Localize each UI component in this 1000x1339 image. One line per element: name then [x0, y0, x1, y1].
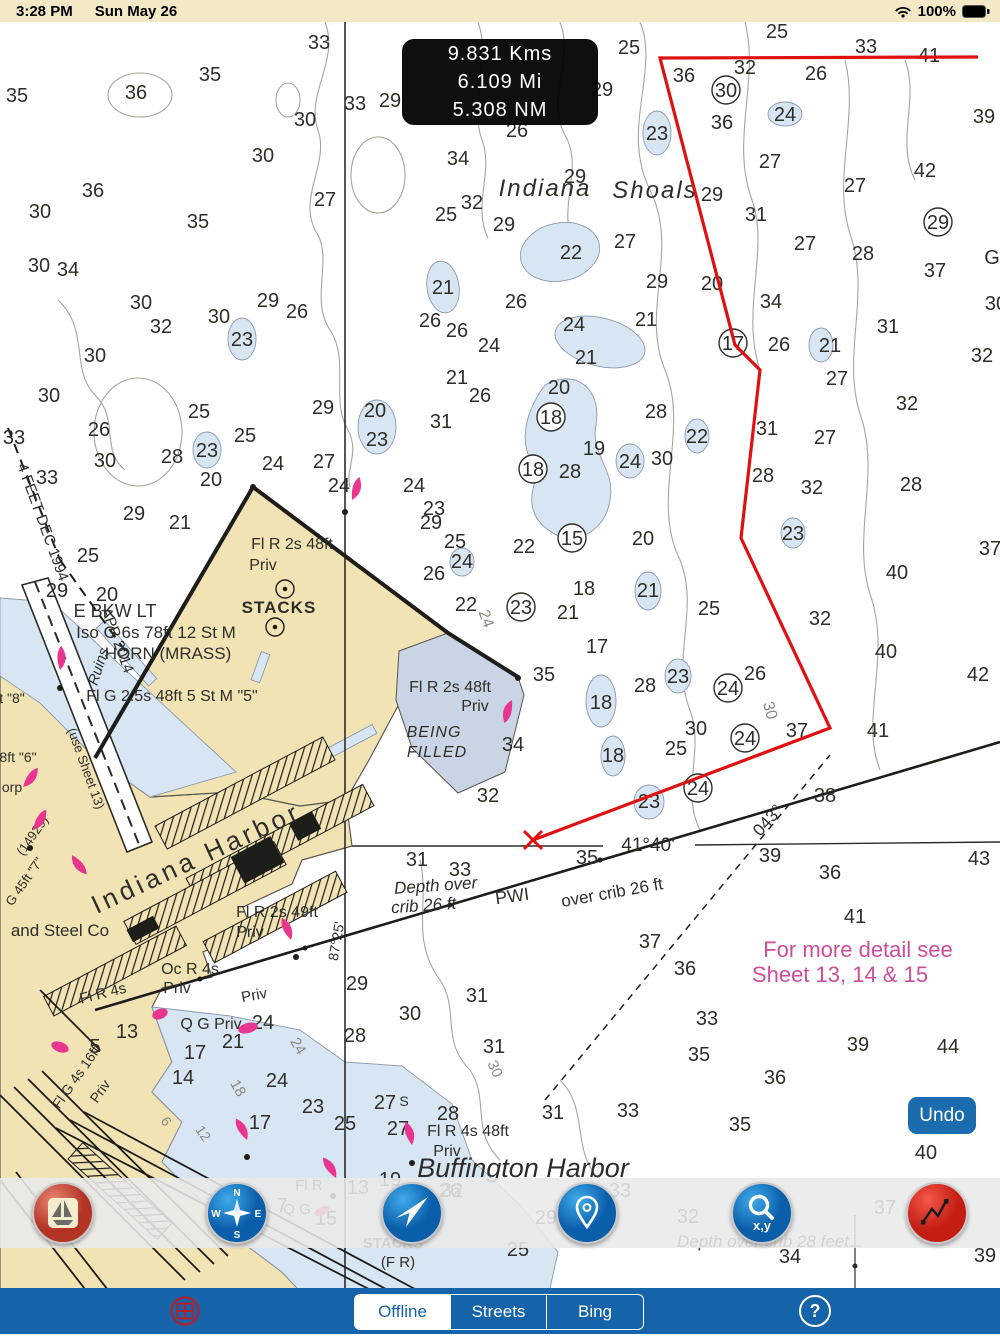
depth-sounding: 29 — [493, 214, 515, 236]
depth-sounding: 35 — [729, 1114, 751, 1136]
compass-n-label: N — [233, 1188, 240, 1199]
depth-sounding: 29 — [123, 503, 145, 525]
depth-sounding: 28 — [852, 243, 874, 265]
depth-sounding: 32 — [477, 785, 499, 807]
depth-sounding: 24 — [774, 104, 796, 126]
chart-label: Sheet 13, 14 & 15 — [752, 962, 928, 987]
depth-sounding: 35 — [187, 211, 209, 233]
chart-label: G — [984, 247, 1000, 269]
depth-sounding: 25 — [766, 21, 788, 43]
depth-sounding: 20 — [632, 528, 654, 550]
depth-sounding: 26 — [805, 63, 827, 85]
battery-icon — [962, 5, 990, 18]
depth-sounding: 20 — [548, 377, 570, 399]
depth-sounding: 29 — [257, 290, 279, 312]
chart-label: 41°40' — [621, 835, 675, 856]
chart-label: Fl R 2s 48ft — [251, 536, 333, 553]
depth-sounding: 30 — [651, 448, 673, 470]
tab-bing[interactable]: Bing — [547, 1295, 643, 1329]
depth-sounding: 30 — [28, 255, 50, 277]
depth-sounding: 17 — [184, 1042, 206, 1064]
depth-sounding: 23 — [510, 597, 532, 619]
depth-sounding: 27 — [374, 1092, 396, 1114]
map-source-segmented-control: Offline Streets Bing — [354, 1294, 644, 1330]
light-position-dot — [409, 1160, 415, 1166]
chart-label: t "8" — [0, 690, 25, 706]
depth-sounding: 15 — [561, 528, 583, 550]
depth-sounding: 33 — [3, 427, 25, 449]
depth-sounding: 22 — [560, 242, 582, 264]
light-position-dot — [57, 685, 63, 691]
depth-sounding: 43 — [968, 848, 990, 870]
wifi-icon — [894, 4, 912, 18]
depth-sounding: 24 — [717, 678, 739, 700]
depth-sounding: 35 — [576, 847, 598, 869]
status-bar: 3:28 PM Sun May 26 100% — [0, 0, 1000, 22]
depth-sounding: 35 — [6, 85, 28, 107]
depth-sounding: 25 — [698, 598, 720, 620]
depth-sounding: 30 — [29, 201, 51, 223]
depth-sounding: 24 — [478, 335, 500, 357]
depth-sounding: 33 — [617, 1100, 639, 1122]
depth-sounding: 31 — [406, 849, 428, 871]
depth-sounding: 30 — [252, 145, 274, 167]
depth-sounding: 28 — [161, 446, 183, 468]
depth-sounding: 27 — [313, 451, 335, 473]
depth-sounding: 29 — [346, 973, 368, 995]
chart-label: FILLED — [407, 744, 467, 761]
bottom-nav-bar: Offline Streets Bing ? — [0, 1288, 1000, 1334]
depth-sounding: 23 — [302, 1096, 324, 1118]
light-position-dot — [27, 845, 33, 851]
chart-label: Priv — [461, 698, 489, 715]
chart-label: Iso G 6s 78ft 12 St M — [76, 623, 236, 642]
depth-sounding: 41 — [844, 906, 866, 928]
depth-sounding: 35 — [199, 64, 221, 86]
compass-w-label: W — [211, 1209, 221, 1220]
light-position-dot — [342, 509, 348, 515]
depth-sounding: 34 — [57, 259, 79, 281]
chart-boat-button[interactable] — [31, 1181, 95, 1245]
gps-arrow-button[interactable] — [380, 1181, 444, 1245]
depth-sounding: 29 — [379, 90, 401, 112]
depth-sounding: 14 — [172, 1067, 194, 1089]
depth-sounding: 26 — [469, 385, 491, 407]
depth-sounding: 31 — [756, 418, 778, 440]
depth-sounding: 30 — [685, 718, 707, 740]
depth-sounding: 30 — [208, 306, 230, 328]
depth-sounding: 18 — [590, 692, 612, 714]
depth-sounding: 25 — [234, 425, 256, 447]
depth-sounding: 32 — [734, 57, 756, 79]
depth-sounding: 21 — [819, 335, 841, 357]
map-toolbar: N S W E x,y — [0, 1178, 1000, 1248]
depth-sounding: 29 — [927, 212, 949, 234]
depth-sounding: 31 — [483, 1036, 505, 1058]
depth-sounding: 37 — [979, 538, 1000, 560]
depth-sounding: 24 — [619, 451, 641, 473]
depth-sounding: 38 — [814, 785, 836, 807]
depth-sounding: 31 — [466, 985, 488, 1007]
light-position-dot — [515, 675, 521, 681]
chart-label: For more detail see — [763, 937, 953, 962]
depth-sounding: 27 — [314, 189, 336, 211]
compass-e-label: E — [255, 1209, 262, 1220]
depth-sounding: 17 — [249, 1112, 271, 1134]
depth-sounding: 26 — [505, 291, 527, 313]
depth-sounding: 26 — [446, 320, 468, 342]
depth-sounding: 40 — [915, 1142, 937, 1164]
depth-sounding: 24 — [328, 475, 350, 497]
depth-sounding: 21 — [635, 309, 657, 331]
depth-sounding: 32 — [896, 393, 918, 415]
distance-km: 9.831 Kms — [448, 40, 553, 68]
depth-sounding: 25 — [444, 531, 466, 553]
depth-sounding: 44 — [937, 1036, 959, 1058]
help-button[interactable]: ? — [799, 1295, 831, 1327]
depth-sounding: 23 — [782, 523, 804, 545]
depth-sounding: 30 — [399, 1003, 421, 1025]
chart-label: Indiana — [499, 175, 592, 202]
xy-label: x,y — [753, 1218, 772, 1233]
status-date: Sun May 26 — [95, 3, 178, 20]
depth-sounding: 28 — [900, 474, 922, 496]
chart-label: S — [399, 1093, 408, 1109]
depth-sounding: 25 — [77, 545, 99, 567]
depth-sounding: 24 — [734, 728, 756, 750]
depth-sounding: 31 — [542, 1102, 564, 1124]
depth-sounding: 42 — [967, 664, 989, 686]
depth-sounding: 29 — [701, 184, 723, 206]
light-position-dot — [244, 1154, 250, 1160]
light-position-dot — [250, 484, 256, 490]
compass-button[interactable]: N S W E — [205, 1181, 269, 1245]
chart-label: Fl R 4s 48ft — [427, 1123, 509, 1140]
depth-sounding: 29 — [420, 512, 442, 534]
chart-label: Shoals — [612, 177, 697, 204]
depth-sounding: 21 — [575, 347, 597, 369]
depth-sounding: 22 — [513, 536, 535, 558]
depth-sounding: 25 — [188, 401, 210, 423]
depth-sounding: 28 — [559, 461, 581, 483]
tab-streets[interactable]: Streets — [451, 1295, 547, 1329]
depth-sounding: 28 — [344, 1025, 366, 1047]
depth-sounding: 32 — [801, 477, 823, 499]
chart-label: Q G Priv — [180, 1016, 241, 1033]
depth-sounding: 33 — [308, 32, 330, 54]
location-pin-button[interactable] — [555, 1181, 619, 1245]
depth-sounding: 20 — [364, 400, 386, 422]
depth-sounding: 27 — [826, 368, 848, 390]
distance-mi: 6.109 Mi — [458, 68, 543, 96]
depth-sounding: 26 — [768, 334, 790, 356]
chart-label: Priv — [163, 980, 191, 997]
depth-sounding: 20 — [200, 469, 222, 491]
depth-sounding: 30 — [94, 450, 116, 472]
compass-s-label: S — [234, 1230, 241, 1241]
depth-sounding: 30 — [985, 293, 1000, 315]
depth-sounding: 34 — [447, 148, 469, 170]
depth-sounding: 22 — [686, 426, 708, 448]
depth-sounding: 32 — [971, 345, 993, 367]
chart-label: Fl G 2.5s 48ft 5 St M "5" — [86, 688, 257, 705]
depth-sounding: 24 — [266, 1070, 288, 1092]
route-button[interactable] — [905, 1181, 969, 1245]
depth-sounding: 30 — [38, 385, 60, 407]
depth-sounding: 23 — [667, 666, 689, 688]
depth-sounding: 35 — [688, 1044, 710, 1066]
depth-sounding: 21 — [637, 580, 659, 602]
depth-sounding: 25 — [665, 738, 687, 760]
coordinates-button[interactable]: x,y — [730, 1181, 794, 1245]
depth-sounding: 27 — [759, 151, 781, 173]
chart-label: Fl R 2s 49ft — [236, 904, 318, 921]
chart-label: (F R) — [381, 1254, 415, 1271]
depth-sounding: 24 — [262, 453, 284, 475]
depth-sounding: 26 — [419, 310, 441, 332]
depth-sounding: 21 — [169, 512, 191, 534]
chart-label: STACKS — [242, 598, 317, 617]
depth-sounding: 31 — [430, 411, 452, 433]
depth-sounding: 28 — [752, 465, 774, 487]
depth-sounding: 21 — [446, 367, 468, 389]
depth-sounding: 32 — [809, 608, 831, 630]
depth-sounding: 30 — [84, 345, 106, 367]
depth-sounding: 26 — [88, 419, 110, 441]
distance-info-box: 9.831 Kms 6.109 Mi 5.308 NM — [402, 39, 598, 125]
chart-label: Priv — [433, 1143, 461, 1160]
depth-sounding: 39 — [759, 845, 781, 867]
depth-sounding: 40 — [886, 562, 908, 584]
depth-sounding: 25 — [618, 37, 640, 59]
depth-sounding: 13 — [116, 1021, 138, 1043]
depth-sounding: 36 — [125, 82, 147, 104]
depth-sounding: 29 — [646, 271, 668, 293]
depth-sounding: 36 — [819, 862, 841, 884]
depth-sounding: 36 — [674, 958, 696, 980]
depth-sounding: 27 — [794, 233, 816, 255]
depth-sounding: 31 — [877, 316, 899, 338]
depth-sounding: 27 — [814, 427, 836, 449]
depth-sounding: 17 — [586, 636, 608, 658]
chart-label: Oc R 4s — [161, 961, 219, 978]
depth-sounding: 27 — [844, 175, 866, 197]
depth-sounding: 23 — [196, 440, 218, 462]
depth-sounding: 19 — [583, 438, 605, 460]
depth-sounding: 40 — [875, 641, 897, 663]
depth-sounding: 28 — [634, 675, 656, 697]
depth-sounding: 18 — [540, 407, 562, 429]
depth-sounding: 22 — [455, 594, 477, 616]
chart-label: Priv — [249, 557, 277, 574]
chart-label: Fl R 2s 48ft — [409, 679, 491, 696]
sailboat-icon — [48, 1198, 78, 1228]
depth-sounding: 18 — [573, 578, 595, 600]
depth-sounding: 36 — [82, 180, 104, 202]
depth-sounding: 18 — [602, 745, 624, 767]
depth-sounding: 30 — [294, 109, 316, 131]
depth-sounding: 33 — [855, 36, 877, 58]
depth-sounding: 28 — [645, 401, 667, 423]
depth-sounding: 39 — [974, 1245, 996, 1267]
depth-sounding: 31 — [745, 204, 767, 226]
clock-time: 3:28 PM — [16, 3, 73, 20]
depth-sounding: 21 — [222, 1031, 244, 1053]
depth-sounding: 32 — [461, 192, 483, 214]
depth-sounding: 23 — [366, 429, 388, 451]
depth-sounding: 41 — [867, 720, 889, 742]
depth-sounding: 27 — [614, 231, 636, 253]
chart-label: Priv — [236, 924, 264, 941]
depth-sounding: 24 — [563, 314, 585, 336]
depth-sounding: 34 — [760, 291, 782, 313]
depth-sounding: 26 — [286, 301, 308, 323]
chart-label: orp — [2, 779, 22, 795]
depth-sounding: 36 — [711, 112, 733, 134]
depth-sounding: 36 — [673, 65, 695, 87]
depth-sounding: 32 — [150, 316, 172, 338]
depth-sounding: 35 — [533, 664, 555, 686]
depth-sounding: 26 — [423, 563, 445, 585]
nautical-chart-map[interactable]: 3325253341363226303536353329292436233930… — [0, 0, 1000, 1334]
depth-sounding: 24 — [403, 475, 425, 497]
app-logo-icon — [168, 1294, 202, 1328]
light-position-dot — [293, 954, 299, 960]
chart-label: 8ft "6" — [0, 749, 37, 765]
tab-offline[interactable]: Offline — [355, 1295, 451, 1329]
depth-sounding: 36 — [764, 1067, 786, 1089]
depth-sounding: 25 — [334, 1113, 356, 1135]
battery-percent: 100% — [918, 3, 956, 20]
depth-sounding: 23 — [231, 329, 253, 351]
depth-sounding: 39 — [847, 1034, 869, 1056]
depth-sounding: 39 — [973, 106, 995, 128]
depth-sounding: 18 — [522, 459, 544, 481]
chart-label: BEING — [407, 724, 462, 741]
depth-sounding: 37 — [924, 260, 946, 282]
depth-sounding: 33 — [344, 93, 366, 115]
depth-sounding: 21 — [432, 277, 454, 299]
depth-sounding: 30 — [130, 292, 152, 314]
chart-label: and Steel Co — [11, 921, 109, 940]
depth-sounding: 26 — [744, 663, 766, 685]
depth-sounding: 23 — [646, 123, 668, 145]
depth-sounding: 24 — [252, 1012, 274, 1034]
depth-sounding: 42 — [914, 160, 936, 182]
depth-sounding: 30 — [715, 80, 737, 102]
depth-sounding: 33 — [696, 1008, 718, 1030]
distance-nm: 5.308 NM — [453, 96, 548, 124]
depth-sounding: 34 — [502, 734, 524, 756]
depth-sounding: 37 — [639, 931, 661, 953]
depth-sounding: 28 — [437, 1103, 459, 1125]
undo-button[interactable]: Undo — [908, 1097, 976, 1134]
depth-sounding: 29 — [312, 397, 334, 419]
depth-sounding: 24 — [451, 551, 473, 573]
depth-sounding: 21 — [557, 602, 579, 624]
depth-sounding: 25 — [435, 204, 457, 226]
